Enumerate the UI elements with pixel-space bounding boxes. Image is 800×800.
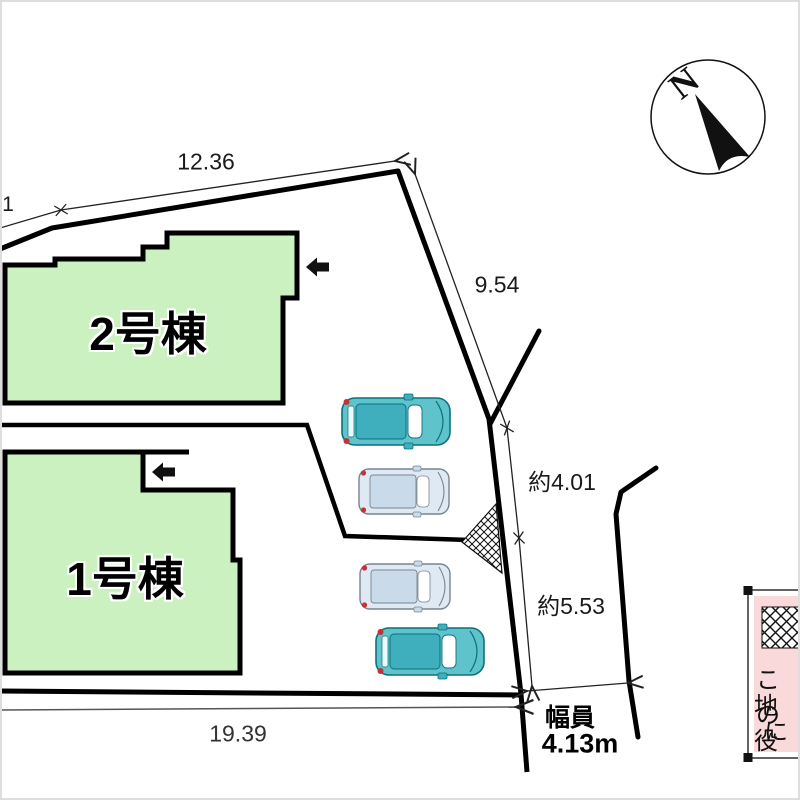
lot-boundary-bottom [0,691,521,695]
road-width-value: 4.13m [542,729,619,760]
car-icon-teal-2 [376,624,484,679]
building-1-label: 1号棟 [66,543,184,609]
dimension-label-bottom: 19.39 [209,721,267,748]
car-icon-teal-1 [342,394,450,449]
site-plan-drawing: N [0,0,800,800]
building-2-label: 2号棟 [89,298,207,364]
car-icon-light-1 [359,466,449,517]
dimension-label-top: 12.36 [177,149,235,176]
site-plan-canvas: N 1 12.36 9.54 約4.01 約5.53 19.39 幅員 4.13… [0,0,800,800]
legend-resize-handle [744,753,753,762]
legend-hatch-swatch-pattern [762,607,800,648]
dimension-label-right-lower: 約5.53 [537,587,605,621]
car-icon-light-2 [360,561,450,612]
dimension-label-right-mid: 約4.01 [528,463,596,497]
dimension-line-bottom [0,707,516,710]
road-far-edge [616,468,656,737]
compass: N [651,59,765,174]
boundary-branch [490,331,539,424]
entrance-arrow-icon-building2 [306,258,329,277]
entrance-arrow-icon-building1 [152,463,175,482]
dimension-line-road-width [527,683,628,691]
dimension-tick [54,204,67,216]
easement-hatch-pattern [462,504,502,573]
legend-resize-handle [744,586,753,595]
legend-text-line: に [764,712,788,747]
dimension-label-right-upper: 9.54 [475,272,520,299]
dimension-label-left-partial: 1 [2,193,14,217]
